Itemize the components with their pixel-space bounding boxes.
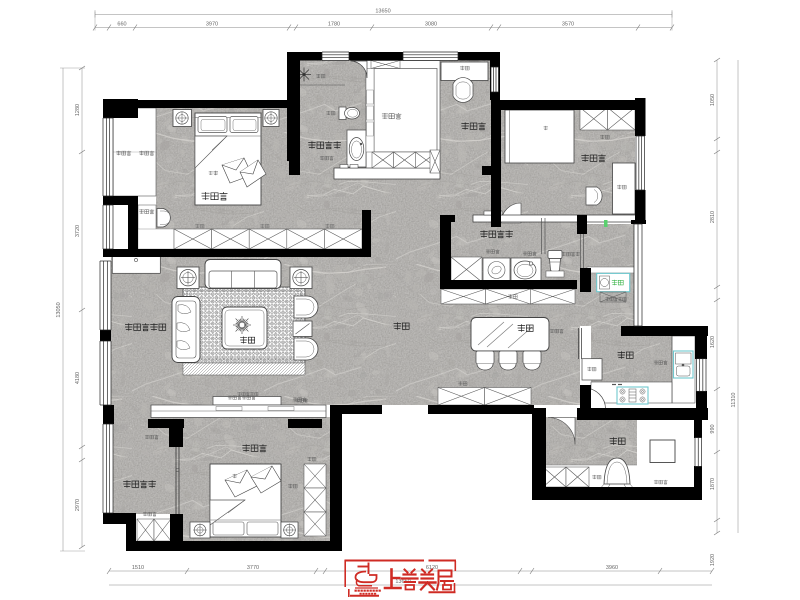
svg-text:4180: 4180 xyxy=(75,372,81,384)
svg-text:3770: 3770 xyxy=(247,565,259,571)
svg-text:990: 990 xyxy=(710,424,716,433)
svg-text:1620: 1620 xyxy=(710,336,716,348)
svg-text:3080: 3080 xyxy=(425,22,437,28)
svg-text:13650: 13650 xyxy=(375,9,390,15)
svg-text:3570: 3570 xyxy=(562,22,574,28)
svg-text:1780: 1780 xyxy=(328,22,340,28)
svg-text:1870: 1870 xyxy=(710,478,716,490)
svg-text:3960: 3960 xyxy=(606,565,618,571)
svg-text:13050: 13050 xyxy=(56,302,62,317)
svg-text:3720: 3720 xyxy=(75,225,81,237)
svg-text:11310: 11310 xyxy=(731,393,737,408)
svg-text:1280: 1280 xyxy=(75,104,81,116)
svg-text:2810: 2810 xyxy=(710,211,716,223)
svg-text:2970: 2970 xyxy=(75,499,81,511)
svg-text:1920: 1920 xyxy=(710,554,716,566)
svg-text:3970: 3970 xyxy=(206,22,218,28)
svg-text:1510: 1510 xyxy=(132,565,144,571)
svg-text:660: 660 xyxy=(117,22,126,28)
svg-text:1050: 1050 xyxy=(710,94,716,106)
